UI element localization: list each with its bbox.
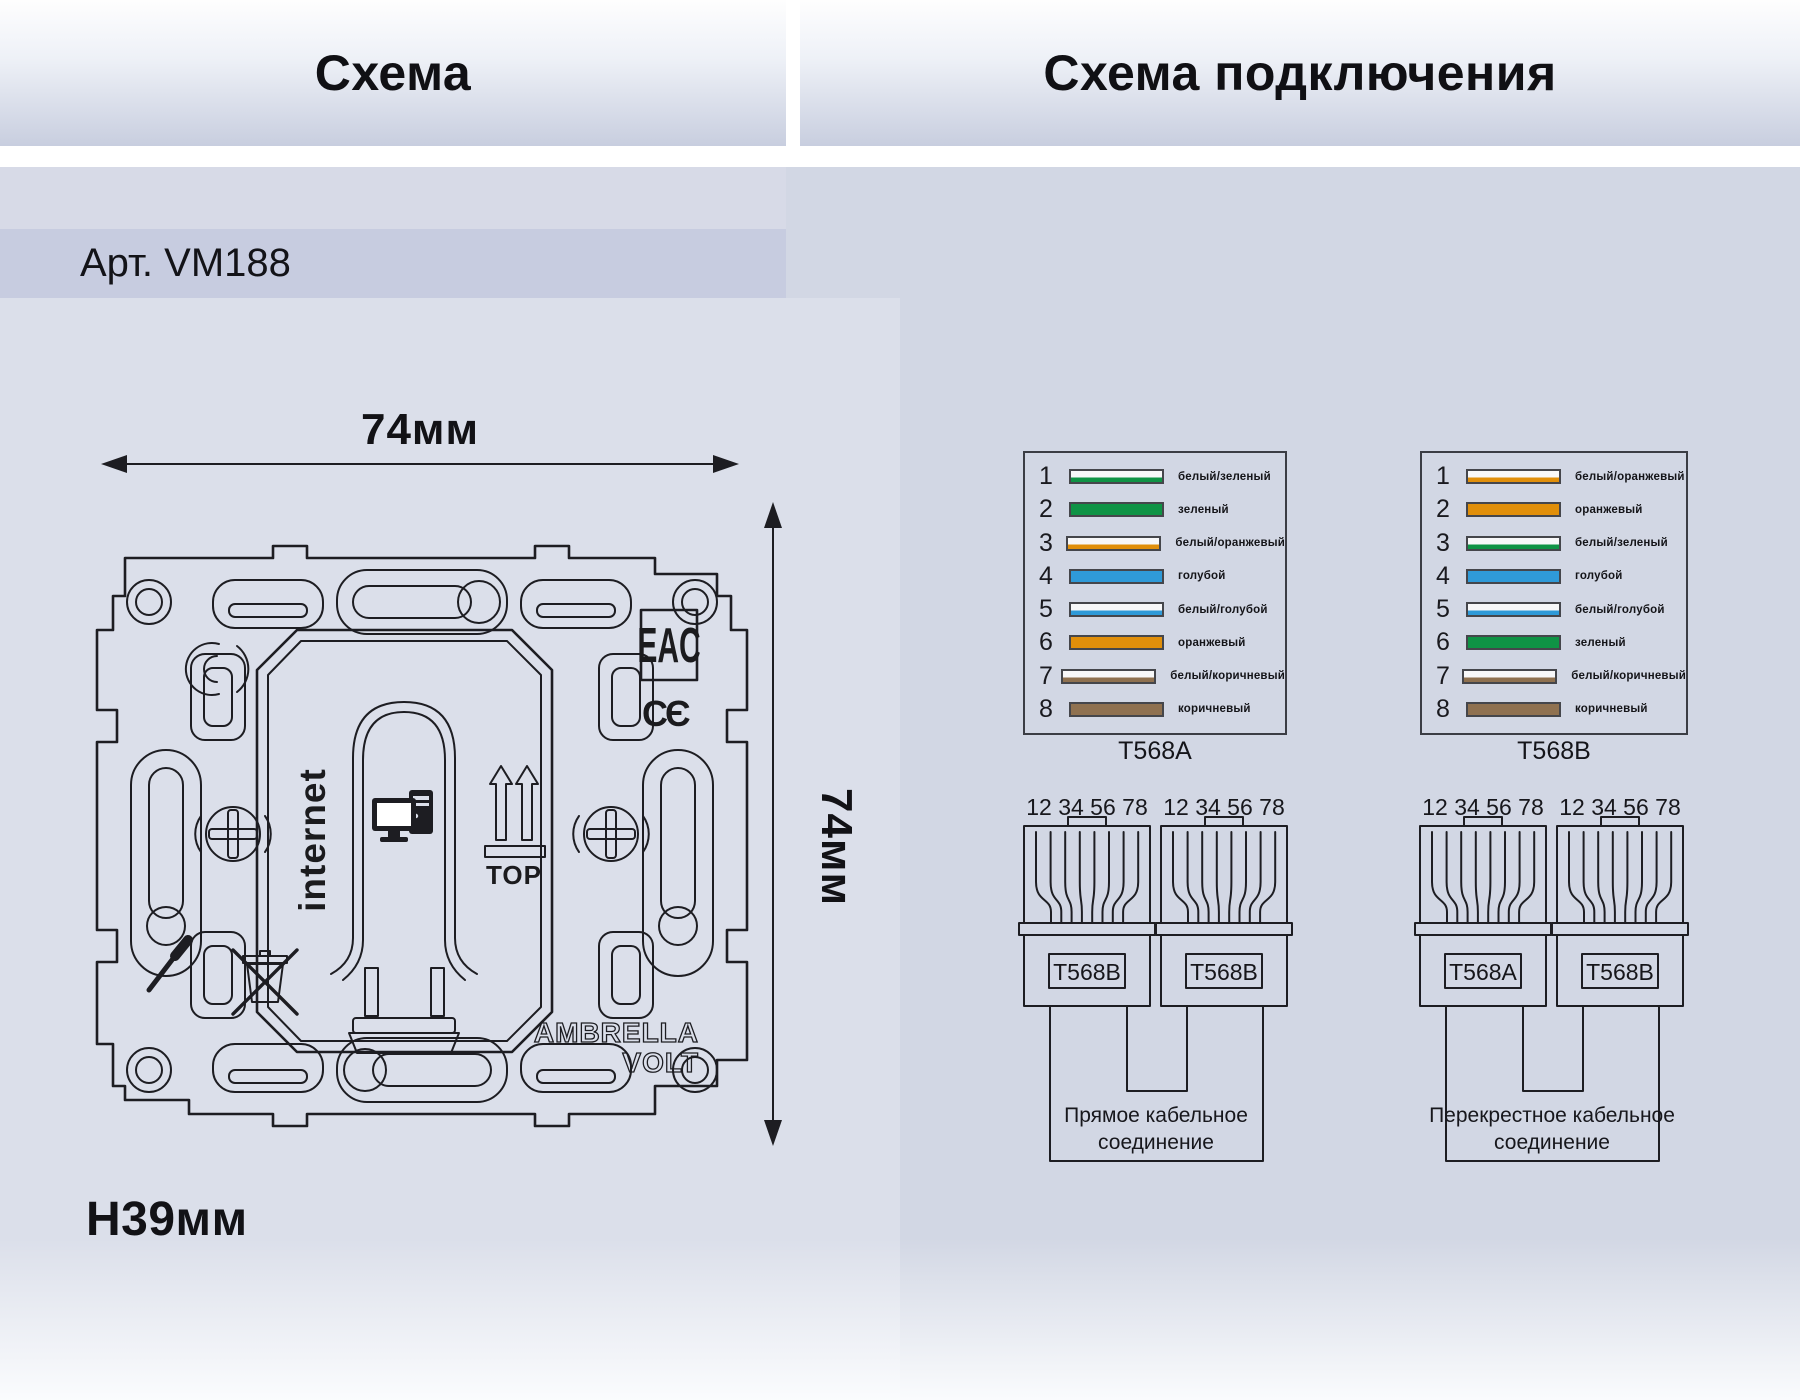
wire-color-name: белый/коричневый — [1170, 670, 1285, 682]
wire-table-t568b-title: T568B — [1420, 737, 1688, 766]
wire-color-name: коричневый — [1575, 703, 1648, 715]
brand-line1: AMBRELLA — [534, 1017, 699, 1048]
pin-number: 2 — [1436, 495, 1464, 524]
mounting-frame: internet TOP EAC CЄ AMBRELLA — [97, 546, 747, 1126]
crossover-cable-inner — [1523, 1006, 1583, 1091]
wire-color-swatch — [1466, 502, 1561, 517]
side-slots — [131, 654, 713, 1018]
wire-row: 8коричневый — [1039, 694, 1285, 725]
pin-number: 5 — [1039, 595, 1067, 624]
pin-number: 4 — [1039, 562, 1067, 591]
wire-color-swatch — [1466, 536, 1561, 551]
wire-row: 3белый/зеленый — [1436, 528, 1686, 559]
wire-color-name: голубой — [1178, 570, 1226, 582]
crossover-cable-caption: Перекрестное кабельное соединение — [1422, 1102, 1682, 1157]
wire-color-swatch — [1069, 502, 1164, 517]
wire-row: 7белый/коричневый — [1039, 661, 1285, 692]
height-dimension-label: 74мм — [812, 788, 861, 906]
left-section-header: Схема — [0, 0, 786, 146]
screwdriver-icon — [149, 940, 188, 990]
top-slots — [213, 570, 631, 634]
wire-row: 6оранжевый — [1039, 627, 1285, 658]
wire-color-name: белый/зеленый — [1178, 471, 1271, 483]
pin-number: 3 — [1039, 529, 1064, 558]
rj45-connector: T568B — [1019, 817, 1155, 1006]
wire-color-swatch — [1066, 536, 1161, 551]
wire-color-name: белый/голубой — [1575, 604, 1665, 616]
wire-row: 4голубой — [1436, 561, 1686, 592]
wire-color-swatch — [1466, 469, 1561, 484]
computer-icon — [372, 790, 433, 842]
wire-color-swatch — [1069, 569, 1164, 584]
connector-standard-label: T568B — [1586, 959, 1654, 985]
wire-table-t568a-title: T568A — [1023, 737, 1287, 766]
wire-row: 5белый/голубой — [1039, 594, 1285, 625]
wire-color-swatch — [1069, 602, 1164, 617]
wire-color-swatch — [1061, 669, 1156, 684]
wire-color-swatch — [1069, 702, 1164, 717]
wire-color-swatch — [1466, 569, 1561, 584]
rj45-connector: T568A — [1415, 817, 1551, 1006]
left-section-title: Схема — [315, 44, 471, 102]
ce-mark-icon: CЄ — [642, 693, 690, 734]
pin-number: 5 — [1436, 595, 1464, 624]
wire-row: 7белый/коричневый — [1436, 661, 1686, 692]
rj45-connector: T568B — [1156, 817, 1292, 1006]
wire-color-name: коричневый — [1178, 703, 1251, 715]
pin-number: 1 — [1039, 462, 1067, 491]
left-light-strip — [0, 167, 786, 229]
wire-color-swatch — [1069, 635, 1164, 650]
wire-row: 2зеленый — [1039, 494, 1285, 525]
rj45-connector: T568B — [1552, 817, 1688, 1006]
wire-row: 8коричневый — [1436, 694, 1686, 725]
wire-color-name: оранжевый — [1178, 637, 1246, 649]
wire-color-swatch — [1466, 635, 1561, 650]
top-arrows-icon — [485, 766, 545, 857]
pin-number: 2 — [1039, 495, 1067, 524]
connector-standard-label: T568A — [1449, 959, 1517, 985]
pin-number: 7 — [1039, 662, 1059, 691]
straight-cable-caption: Прямое кабельное соединение — [1026, 1102, 1286, 1157]
wire-color-swatch — [1462, 669, 1557, 684]
connector-standard-label: T568B — [1053, 959, 1121, 985]
wire-color-name: зеленый — [1575, 637, 1626, 649]
straight-cable-inner — [1127, 1006, 1187, 1091]
wire-color-name: белый/оранжевый — [1175, 537, 1285, 549]
wire-color-name: белый/зеленый — [1575, 537, 1668, 549]
wire-row: 1белый/оранжевый — [1436, 461, 1686, 492]
wire-color-name: белый/голубой — [1178, 604, 1268, 616]
pin-number: 3 — [1436, 529, 1464, 558]
wire-color-name: белый/коричневый — [1571, 670, 1686, 682]
wire-row: 4голубой — [1039, 561, 1285, 592]
connector-standard-label: T568B — [1190, 959, 1258, 985]
technical-drawing: 74мм 74мм — [85, 352, 865, 1262]
wire-row: 2оранжевый — [1436, 494, 1686, 525]
wire-row: 6зеленый — [1436, 627, 1686, 658]
pin-number: 6 — [1039, 628, 1067, 657]
pin-number: 6 — [1436, 628, 1464, 657]
wire-table-t568b: 1белый/оранжевый2оранжевый3белый/зеленый… — [1420, 451, 1688, 735]
wire-color-swatch — [1466, 602, 1561, 617]
central-module: internet TOP — [257, 630, 552, 1053]
width-dimension-label: 74мм — [361, 405, 479, 454]
wire-color-name: зеленый — [1178, 504, 1229, 516]
pin-number: 4 — [1436, 562, 1464, 591]
eac-label: EAC — [637, 617, 700, 673]
height-dimension-arrow — [764, 502, 782, 1146]
pin-number: 7 — [1436, 662, 1460, 691]
eac-mark-icon: EAC — [637, 610, 700, 680]
connection-scheme-panel — [786, 167, 1800, 1400]
wire-table-t568a: 1белый/зеленый2зеленый3белый/оранжевый4г… — [1023, 451, 1287, 735]
pin-number: 1 — [1436, 462, 1464, 491]
wire-color-swatch — [1069, 469, 1164, 484]
width-dimension-arrow — [101, 455, 739, 473]
pin-number: 8 — [1039, 695, 1067, 724]
wire-row: 3белый/оранжевый — [1039, 528, 1285, 559]
wire-row: 1белый/зеленый — [1039, 461, 1285, 492]
pin-number: 8 — [1436, 695, 1464, 724]
wire-color-name: оранжевый — [1575, 504, 1643, 516]
wire-color-swatch — [1466, 702, 1561, 717]
brand-line2: VOLT — [622, 1047, 699, 1078]
no-discard-icon — [233, 950, 297, 1014]
right-section-title: Схема подключения — [1043, 44, 1556, 102]
article-band: Арт. VM188 — [0, 229, 786, 298]
wire-color-name: голубой — [1575, 570, 1623, 582]
right-section-header: Схема подключения — [800, 0, 1800, 146]
article-number: Арт. VM188 — [80, 241, 291, 286]
top-label: TOP — [486, 860, 542, 890]
wire-color-name: белый/оранжевый — [1575, 471, 1685, 483]
wire-row: 5белый/голубой — [1436, 594, 1686, 625]
depth-dimension-label: H39мм — [86, 1192, 248, 1247]
internet-label: internet — [292, 768, 333, 912]
